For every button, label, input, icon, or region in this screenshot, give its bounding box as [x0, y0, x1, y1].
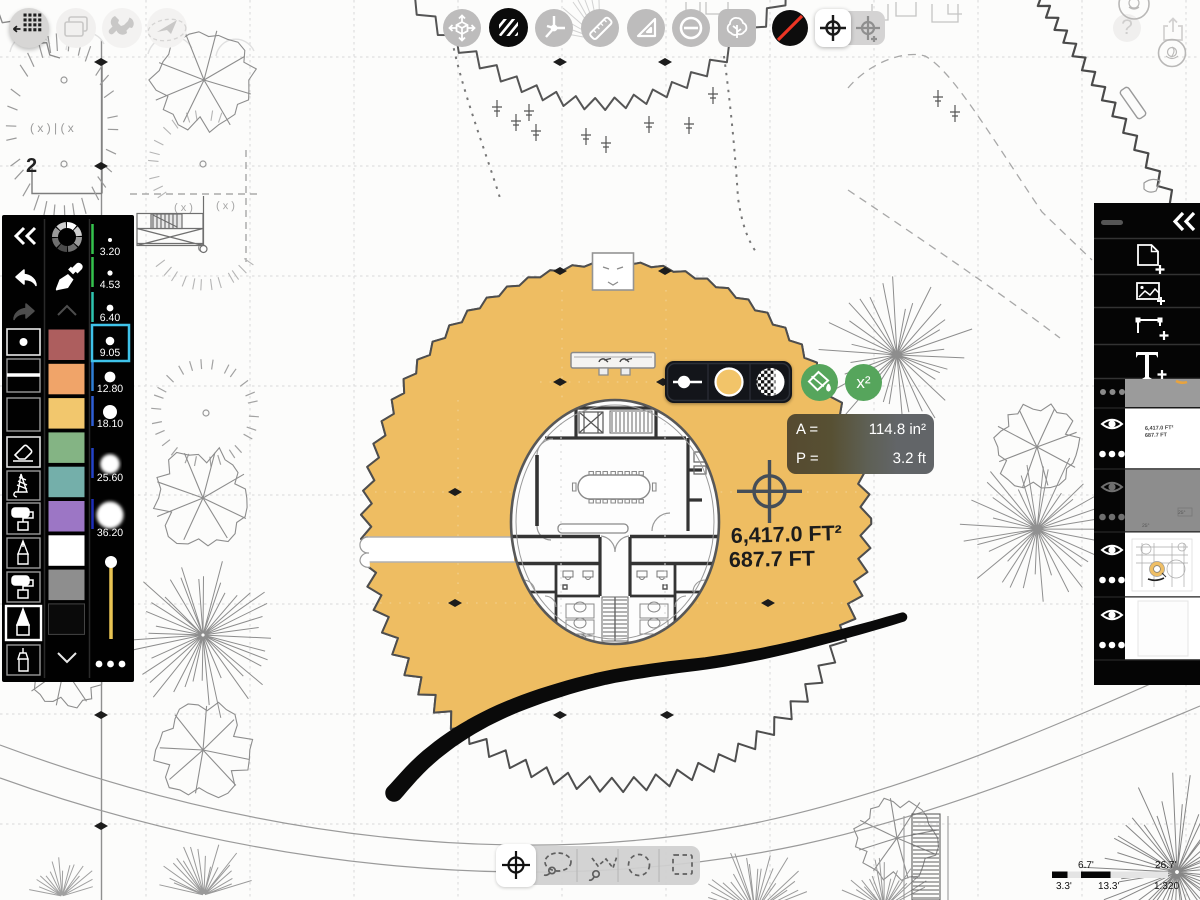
svg-text:6,417.0 FT²: 6,417.0 FT² — [1145, 424, 1174, 432]
svg-text:( x ): ( x ) — [174, 202, 193, 214]
svg-text:687.7 FT: 687.7 FT — [1145, 432, 1168, 439]
svg-text:12.80: 12.80 — [97, 383, 123, 395]
svg-text:36.20: 36.20 — [97, 527, 123, 539]
svg-text:6.7': 6.7' — [1078, 860, 1094, 871]
svg-text:6,417.0 FT²: 6,417.0 FT² — [731, 521, 843, 548]
svg-text:25.60: 25.60 — [97, 472, 123, 484]
svg-text:687.7 FT: 687.7 FT — [729, 547, 815, 572]
svg-text:6.40: 6.40 — [100, 312, 121, 324]
svg-text:( x ) | ( x: ( x ) | ( x — [30, 121, 74, 135]
svg-text:18.10: 18.10 — [97, 418, 123, 430]
svg-text:1:320: 1:320 — [1154, 881, 1179, 892]
svg-text:25°: 25° — [1178, 510, 1186, 516]
svg-text:26.7': 26.7' — [1155, 860, 1176, 871]
svg-text:25°: 25° — [1142, 523, 1150, 529]
svg-text:3.3': 3.3' — [1056, 881, 1072, 892]
svg-text:13.3': 13.3' — [1098, 881, 1119, 892]
svg-text:4.53: 4.53 — [100, 279, 121, 291]
svg-text:( x ): ( x ) — [216, 200, 235, 212]
svg-text:2: 2 — [26, 155, 37, 177]
svg-text:9.05: 9.05 — [100, 347, 121, 359]
svg-text:3.20: 3.20 — [100, 246, 121, 258]
